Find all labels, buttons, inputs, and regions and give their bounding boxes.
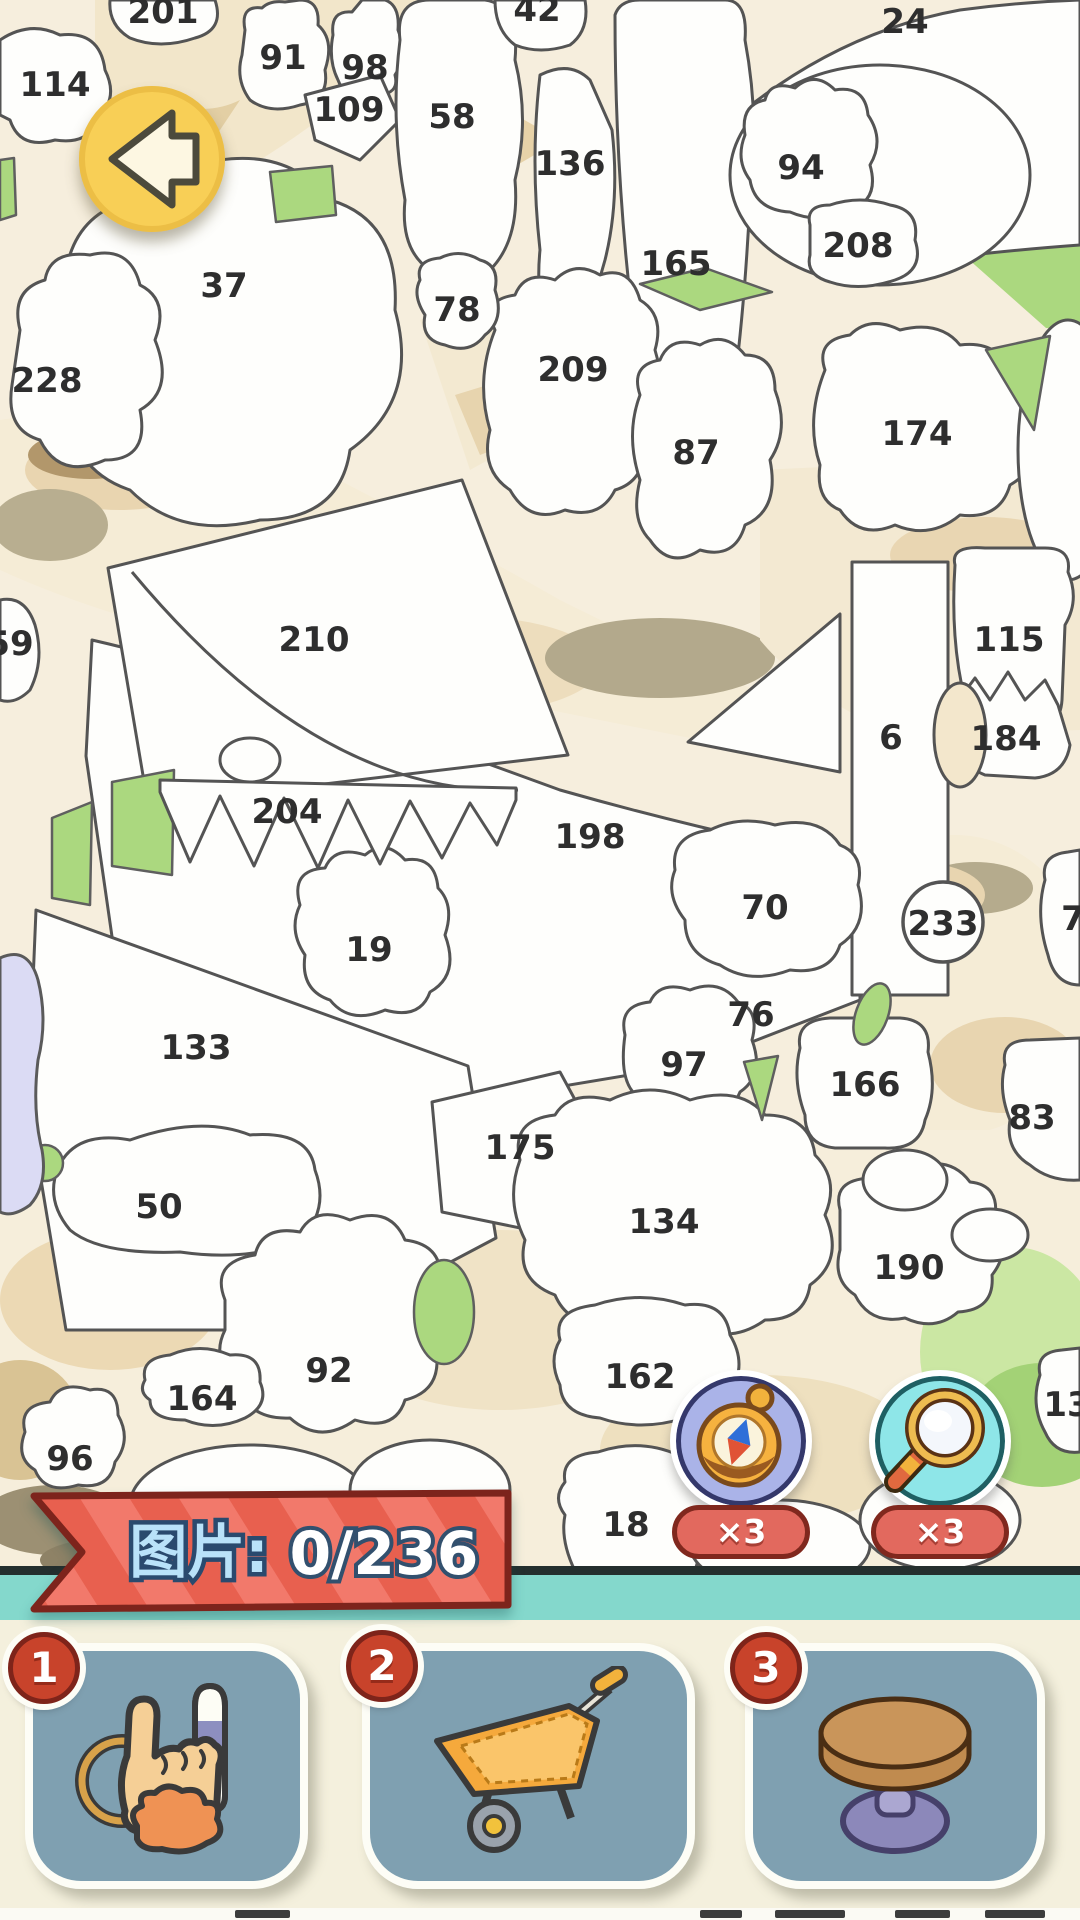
banner-progress: 0/236	[290, 1519, 479, 1589]
region-label-134[interactable]: 134	[629, 1202, 700, 1242]
hand-keychain-icon	[67, 1661, 267, 1871]
region-label-233[interactable]: 233	[908, 904, 979, 944]
back-button[interactable]	[79, 86, 225, 232]
region-58	[396, 0, 523, 283]
compass-icon	[676, 1376, 806, 1506]
region-label-175[interactable]: 175	[485, 1128, 556, 1168]
region-label-13[interactable]: 13	[1043, 1385, 1080, 1425]
magnifier-booster-button[interactable]	[869, 1370, 1011, 1512]
item-2-number-badge: 2	[346, 1630, 418, 1702]
region-label-166[interactable]: 166	[830, 1065, 901, 1105]
region-label-97[interactable]: 97	[660, 1045, 707, 1085]
compass-booster-button[interactable]	[670, 1370, 812, 1512]
region-label-6[interactable]: 6	[879, 718, 903, 758]
item-1-number-badge: 1	[8, 1632, 80, 1704]
region-label-18[interactable]: 18	[602, 1505, 649, 1545]
region-label-209[interactable]: 209	[538, 350, 609, 390]
region-label-115[interactable]: 115	[974, 620, 1045, 660]
region-label-208[interactable]: 208	[823, 226, 894, 266]
region-label-91[interactable]: 91	[259, 38, 306, 78]
item-3-number-badge: 3	[730, 1632, 802, 1704]
region-label-162[interactable]: 162	[605, 1357, 676, 1397]
puzzle-canvas[interactable]: 2014224919810911458136942081653778228209…	[0, 0, 1080, 1571]
region-label-19[interactable]: 19	[345, 930, 392, 970]
region-label-109[interactable]: 109	[314, 90, 385, 130]
lavender-silhouette	[0, 954, 44, 1213]
region-label-59[interactable]: 59	[0, 624, 34, 664]
region-label-198[interactable]: 198	[555, 817, 626, 857]
game-screen: 2014224919810911458136942081653778228209…	[0, 0, 1080, 1920]
region-label-78[interactable]: 78	[433, 290, 480, 330]
magnifier-count-badge: ×3	[871, 1505, 1009, 1559]
region-label-184[interactable]: 184	[971, 719, 1042, 759]
region-label-7[interactable]: 7	[1061, 899, 1080, 939]
wheelbarrow-icon	[419, 1666, 639, 1866]
region-label-165[interactable]: 165	[641, 244, 712, 284]
region-label-133[interactable]: 133	[161, 1028, 232, 1068]
region-label-58[interactable]: 58	[428, 97, 475, 137]
bottom-cutoff-strip	[0, 1908, 1080, 1920]
region-label-201[interactable]: 201	[128, 0, 199, 32]
region-label-136[interactable]: 136	[535, 144, 606, 184]
region-209	[484, 269, 661, 515]
region-label-42[interactable]: 42	[513, 0, 560, 30]
round-table-icon	[795, 1671, 995, 1861]
progress-banner: 图片: 0/236	[24, 1488, 516, 1614]
region-label-96[interactable]: 96	[46, 1439, 93, 1479]
region-label-70[interactable]: 70	[741, 888, 788, 928]
banner-label: 图片:	[129, 1518, 268, 1586]
back-arrow-icon	[79, 86, 225, 232]
region-label-50[interactable]: 50	[135, 1187, 182, 1227]
region-label-190[interactable]: 190	[874, 1248, 945, 1288]
region-label-210[interactable]: 210	[279, 620, 350, 660]
region-label-174[interactable]: 174	[882, 414, 953, 454]
region-label-228[interactable]: 228	[12, 361, 83, 401]
region-label-24[interactable]: 24	[881, 2, 928, 42]
region-label-76[interactable]: 76	[727, 995, 774, 1035]
region-label-204[interactable]: 204	[252, 792, 323, 832]
region-label-94[interactable]: 94	[777, 148, 824, 188]
region-label-83[interactable]: 83	[1008, 1098, 1055, 1138]
region-label-164[interactable]: 164	[167, 1379, 238, 1419]
magnifier-icon	[875, 1376, 1005, 1506]
region-label-98[interactable]: 98	[341, 48, 388, 88]
region-228	[11, 253, 162, 467]
region-label-87[interactable]: 87	[672, 433, 719, 473]
region-label-92[interactable]: 92	[305, 1351, 352, 1391]
compass-count-badge: ×3	[672, 1505, 810, 1559]
region-label-37[interactable]: 37	[200, 266, 247, 306]
